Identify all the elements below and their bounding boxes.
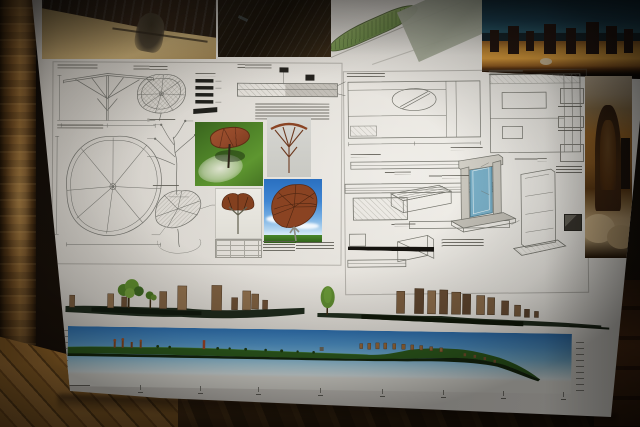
khachkar-carving [600,120,616,190]
presentation-board [0,0,640,427]
site-elements-svg [344,70,588,295]
ruler-tick-label [256,394,261,396]
label-stele [515,158,547,161]
stone-silhouette [624,29,633,53]
render-canopy-grass [195,122,263,186]
roof-streaks [218,0,331,57]
label-perspective-title [153,185,179,188]
standing-stones-photo [482,0,640,79]
label-anchor-title [237,64,271,68]
ruler-tick [503,391,504,396]
mini-plan-3 [560,144,584,162]
structure-tree-svg [267,117,311,177]
sky-canopy-svg [264,179,322,243]
panorama-right-scale [576,342,584,394]
render-canopy-small [215,188,262,239]
ruler-tick-label [561,399,566,401]
ruler-tick [140,385,141,390]
small-canopy-svg [216,189,261,238]
stone-silhouette [606,26,617,54]
khachkar-photo [585,76,632,258]
tree-left-small [146,291,157,308]
ruler-tick [382,389,383,394]
ruler-tick-label [318,395,323,397]
panorama-terrain-svg [67,326,572,394]
right-drawing-sheet [343,69,589,296]
stone-silhouette [508,26,519,54]
render-structure-grey [267,117,311,177]
ruler-tick-label [138,392,143,394]
ruler-tick [320,388,321,393]
ruler-tick-label [501,398,506,400]
ruler-tick-label [441,397,446,399]
khachkar-side-stone [621,138,630,189]
stone-silhouette [544,24,556,54]
mini-notes [556,166,582,174]
stone-silhouette [566,28,576,54]
ruler-tick-label [198,393,203,395]
door-frame-highlight [4,120,32,280]
label-edge-profile-2 [429,175,469,178]
photo-scene [0,0,640,427]
panorama-section [67,326,572,394]
render-canopy-sky [264,179,322,243]
khachkar-stone [595,105,620,211]
label-ramp [391,224,415,227]
stone-silhouette [490,30,499,52]
title-table [215,239,262,258]
stone-silhouette [526,31,534,51]
stone-silhouette [586,22,599,54]
label-section-b [489,70,523,74]
label-elevation-title [57,64,97,68]
mini-plan-1 [560,88,584,104]
ruler-tick-label [380,396,385,398]
label-slat-title [195,73,215,76]
stones-animal-blob [540,58,552,65]
notes-block-2 [296,242,334,251]
label-plan-title [133,66,167,70]
label-portal [451,147,483,150]
dark-roof-photo [218,0,331,57]
label-section-a [347,73,385,77]
notes-bottom [442,239,484,247]
mini-label-2 [558,130,582,133]
canopy-shadow-dark [215,150,245,162]
ruler-tick [443,390,444,395]
mini-plan-2 [558,116,584,128]
mini-label-1 [558,106,582,109]
sand-shadow-photo [42,0,216,59]
mini-axon-box [564,214,582,231]
label-frame-plan-title [57,124,103,128]
label-edge-profile [351,154,381,157]
ruler-tick [563,392,564,397]
tree-right [320,286,334,315]
label-bench [385,172,411,175]
notes-block [263,241,295,251]
ruler-tick [258,387,259,392]
ruler-tick [200,386,201,391]
label-branch-title [147,119,175,122]
